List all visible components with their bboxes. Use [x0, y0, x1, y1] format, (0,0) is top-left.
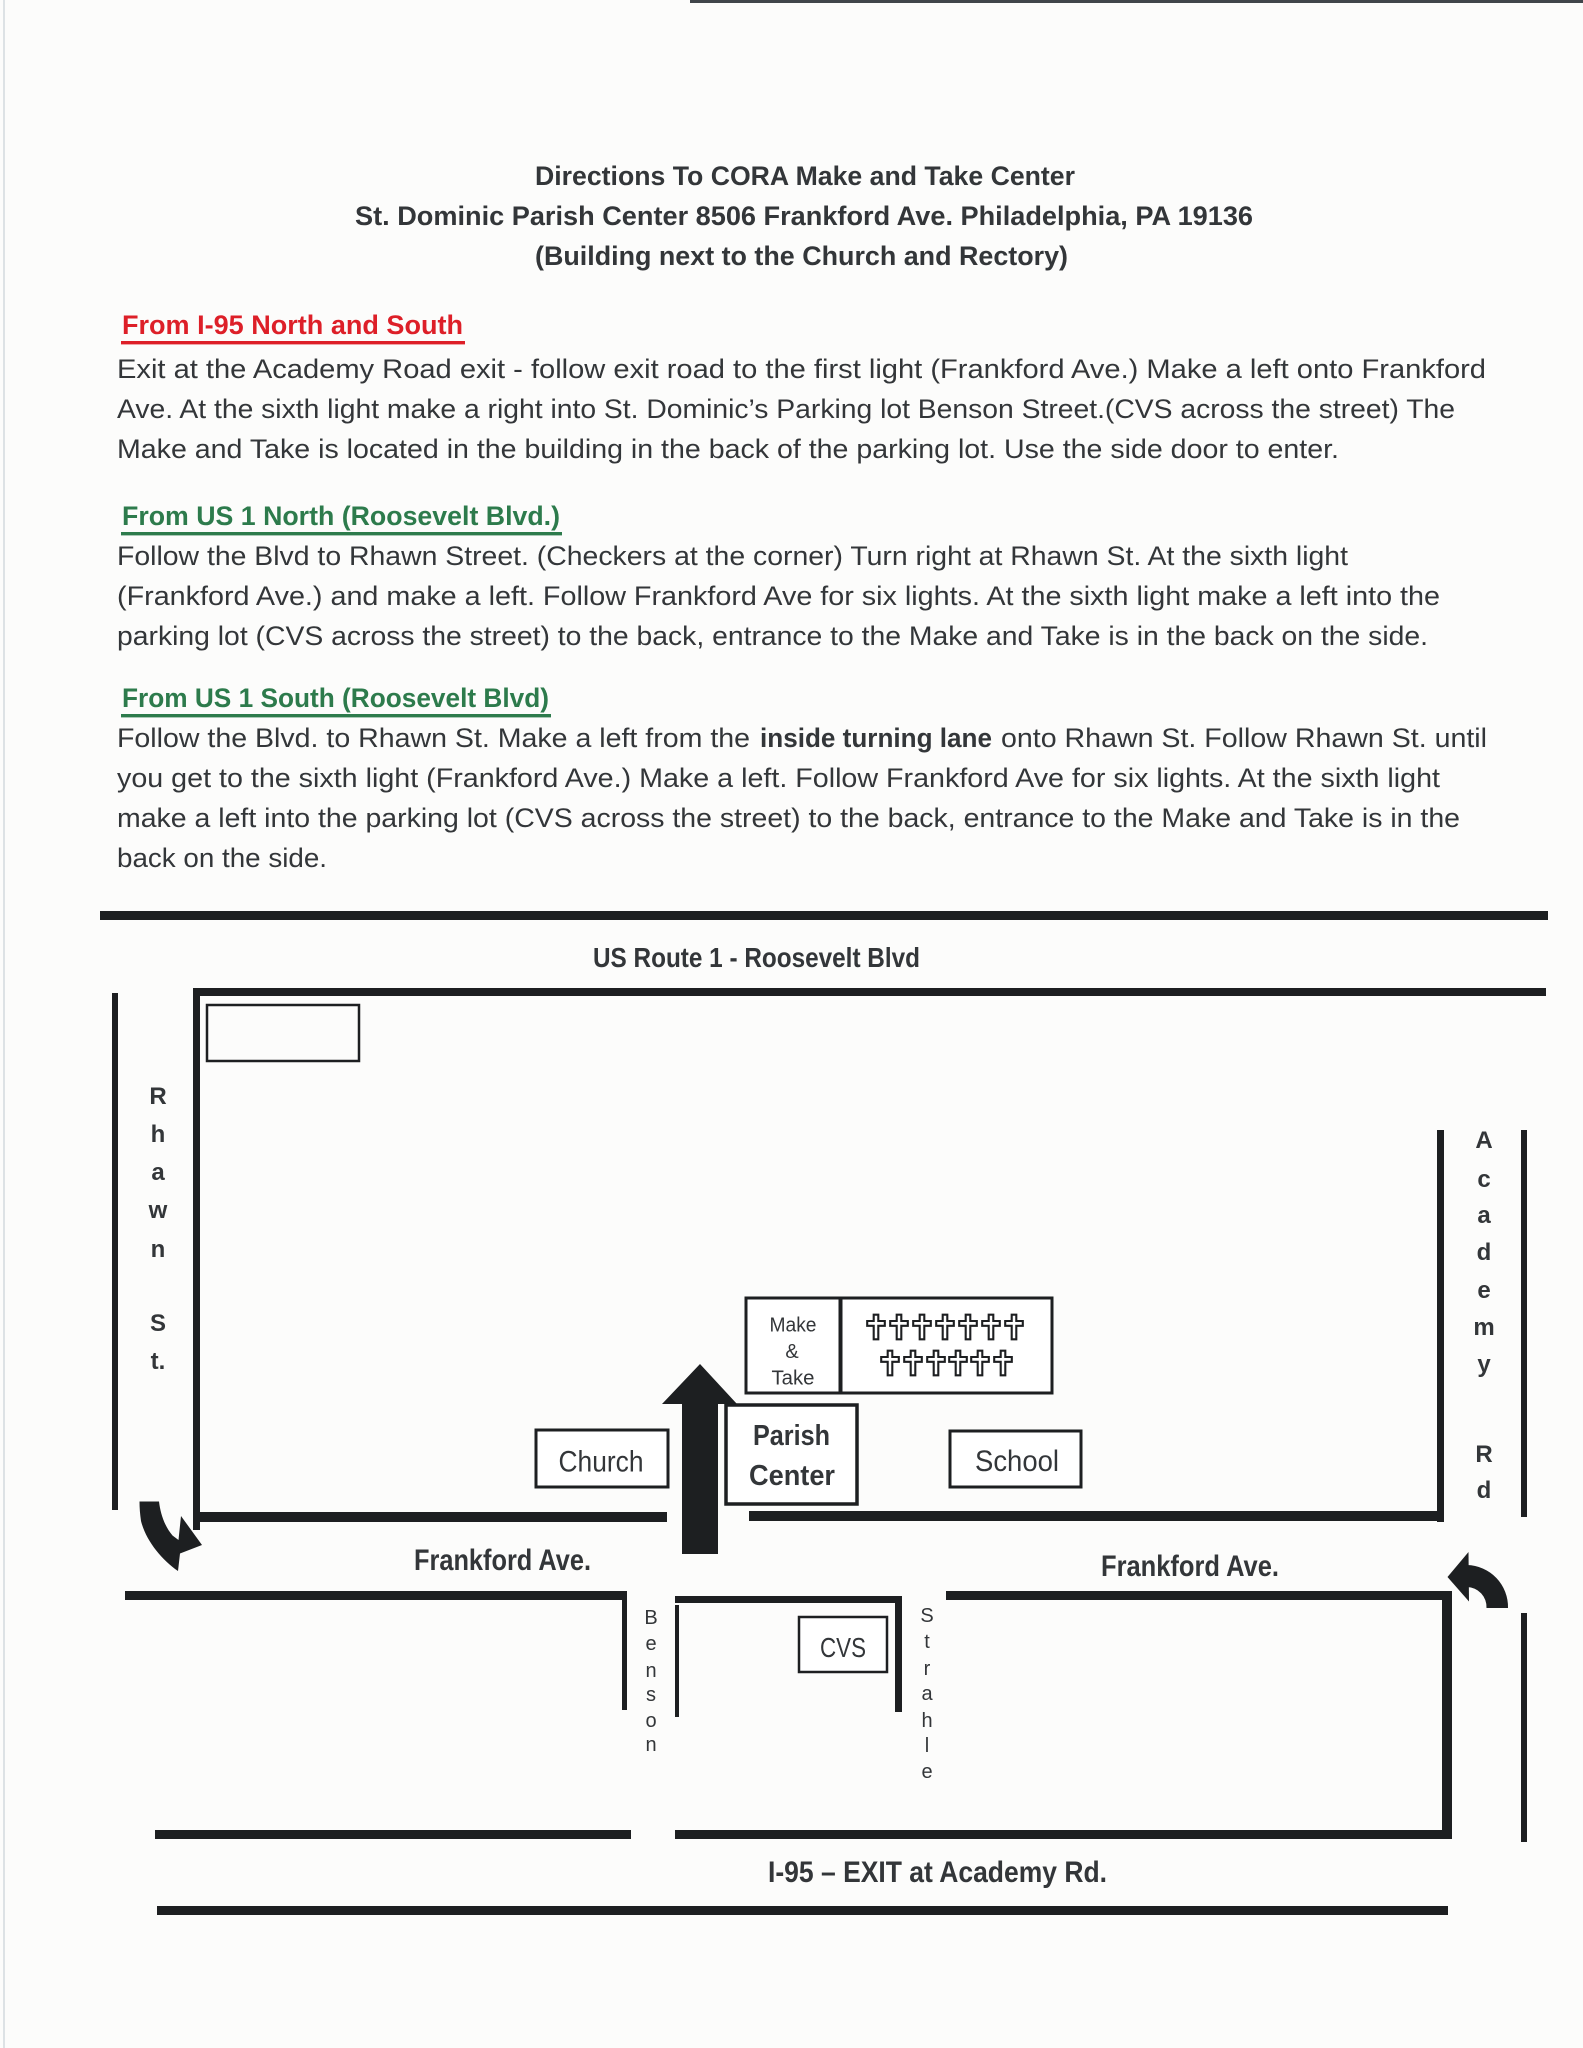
- svg-text:R: R: [149, 1083, 166, 1110]
- svg-text:&: &: [785, 1341, 799, 1363]
- svg-text:n: n: [645, 1734, 656, 1756]
- svg-text:parking lot (CVS across the st: parking lot (CVS across the street) to t…: [117, 621, 1428, 651]
- svg-text:t: t: [924, 1631, 930, 1653]
- svg-text:A: A: [1475, 1127, 1492, 1154]
- svg-text:c: c: [1477, 1166, 1490, 1193]
- svg-text:d: d: [1477, 1477, 1492, 1504]
- svg-text:e: e: [1477, 1277, 1490, 1304]
- svg-text:a: a: [151, 1159, 165, 1186]
- svg-text:S: S: [150, 1310, 166, 1337]
- svg-text:From I-95 North and South: From I-95 North and South: [122, 310, 463, 340]
- svg-text:St. Dominic Parish Center 8506: St. Dominic Parish Center 8506 Frankford…: [355, 201, 1253, 231]
- svg-text:r: r: [924, 1658, 931, 1680]
- svg-text:n: n: [151, 1236, 166, 1263]
- svg-text:Take: Take: [772, 1368, 815, 1390]
- svg-text:o: o: [645, 1710, 656, 1732]
- svg-text:onto Rhawn St. Follow Rhawn St: onto Rhawn St. Follow Rhawn St. until: [1001, 723, 1487, 753]
- svg-text:Make and Take is located in th: Make and Take is located in the building…: [117, 434, 1339, 464]
- svg-text:e: e: [921, 1761, 932, 1783]
- svg-text:you get to the sixth light (Fr: you get to the sixth light (Frankford Av…: [117, 763, 1441, 793]
- svg-text:Exit at the Academy Road exit: Exit at the Academy Road exit - follow e…: [117, 354, 1486, 384]
- svg-text:R: R: [1475, 1441, 1492, 1468]
- svg-text:Frankford Ave.: Frankford Ave.: [1101, 1550, 1279, 1583]
- svg-text:t.: t.: [151, 1348, 166, 1375]
- svg-text:w: w: [148, 1197, 168, 1224]
- svg-text:s: s: [646, 1684, 656, 1706]
- svg-text:d: d: [1477, 1239, 1492, 1266]
- svg-text:Directions To CORA Make and Ta: Directions To CORA Make and Take Center: [535, 161, 1075, 191]
- svg-text:(Building next to the Church a: (Building next to the Church and Rectory…: [535, 241, 1068, 271]
- svg-text:e: e: [645, 1633, 656, 1655]
- svg-text:S: S: [920, 1605, 933, 1627]
- svg-text:B: B: [644, 1607, 657, 1629]
- svg-text:From US 1 North (Roosevelt Blv: From US 1 North (Roosevelt Blvd.): [122, 501, 560, 531]
- svg-text:back on the side.: back on the side.: [117, 843, 327, 873]
- svg-text:a: a: [921, 1683, 933, 1705]
- svg-text:School: School: [975, 1445, 1059, 1478]
- svg-text:Church: Church: [559, 1446, 644, 1479]
- svg-text:Frankford Ave.: Frankford Ave.: [414, 1544, 591, 1577]
- svg-text:y: y: [1477, 1351, 1491, 1378]
- svg-text:n: n: [645, 1660, 656, 1682]
- svg-text:(Frankford Ave.) and make a le: (Frankford Ave.) and make a left. Follow…: [117, 581, 1440, 611]
- svg-text:m: m: [1473, 1314, 1494, 1341]
- svg-text:From US 1 South (Roosevelt Blv: From US 1 South (Roosevelt Blvd): [122, 683, 549, 713]
- svg-text:Center: Center: [749, 1460, 835, 1492]
- svg-text:Follow the Blvd to Rhawn Stree: Follow the Blvd to Rhawn Street. (Checke…: [117, 541, 1349, 571]
- svg-text:h: h: [151, 1121, 166, 1148]
- svg-text:Follow the Blvd. to Rhawn St.: Follow the Blvd. to Rhawn St. Make a lef…: [117, 723, 750, 753]
- svg-text:l: l: [925, 1735, 929, 1757]
- svg-text:Parish: Parish: [753, 1420, 830, 1452]
- svg-text:Ave. At the sixth light make a: Ave. At the sixth light make a right int…: [117, 394, 1455, 424]
- svg-text:h: h: [921, 1710, 932, 1732]
- svg-text:inside turning lane: inside turning lane: [760, 723, 992, 753]
- svg-text:a: a: [1477, 1202, 1491, 1229]
- svg-text:make a left into the parking l: make a left into the parking lot (CVS ac…: [117, 803, 1460, 833]
- svg-text:CVS: CVS: [820, 1632, 866, 1663]
- svg-text:Make: Make: [770, 1315, 817, 1337]
- svg-text:US Route 1 - Roosevelt Blvd: US Route 1 - Roosevelt Blvd: [593, 942, 920, 973]
- svg-text:I-95 – EXIT at Academy Rd.: I-95 – EXIT at Academy Rd.: [768, 1856, 1107, 1889]
